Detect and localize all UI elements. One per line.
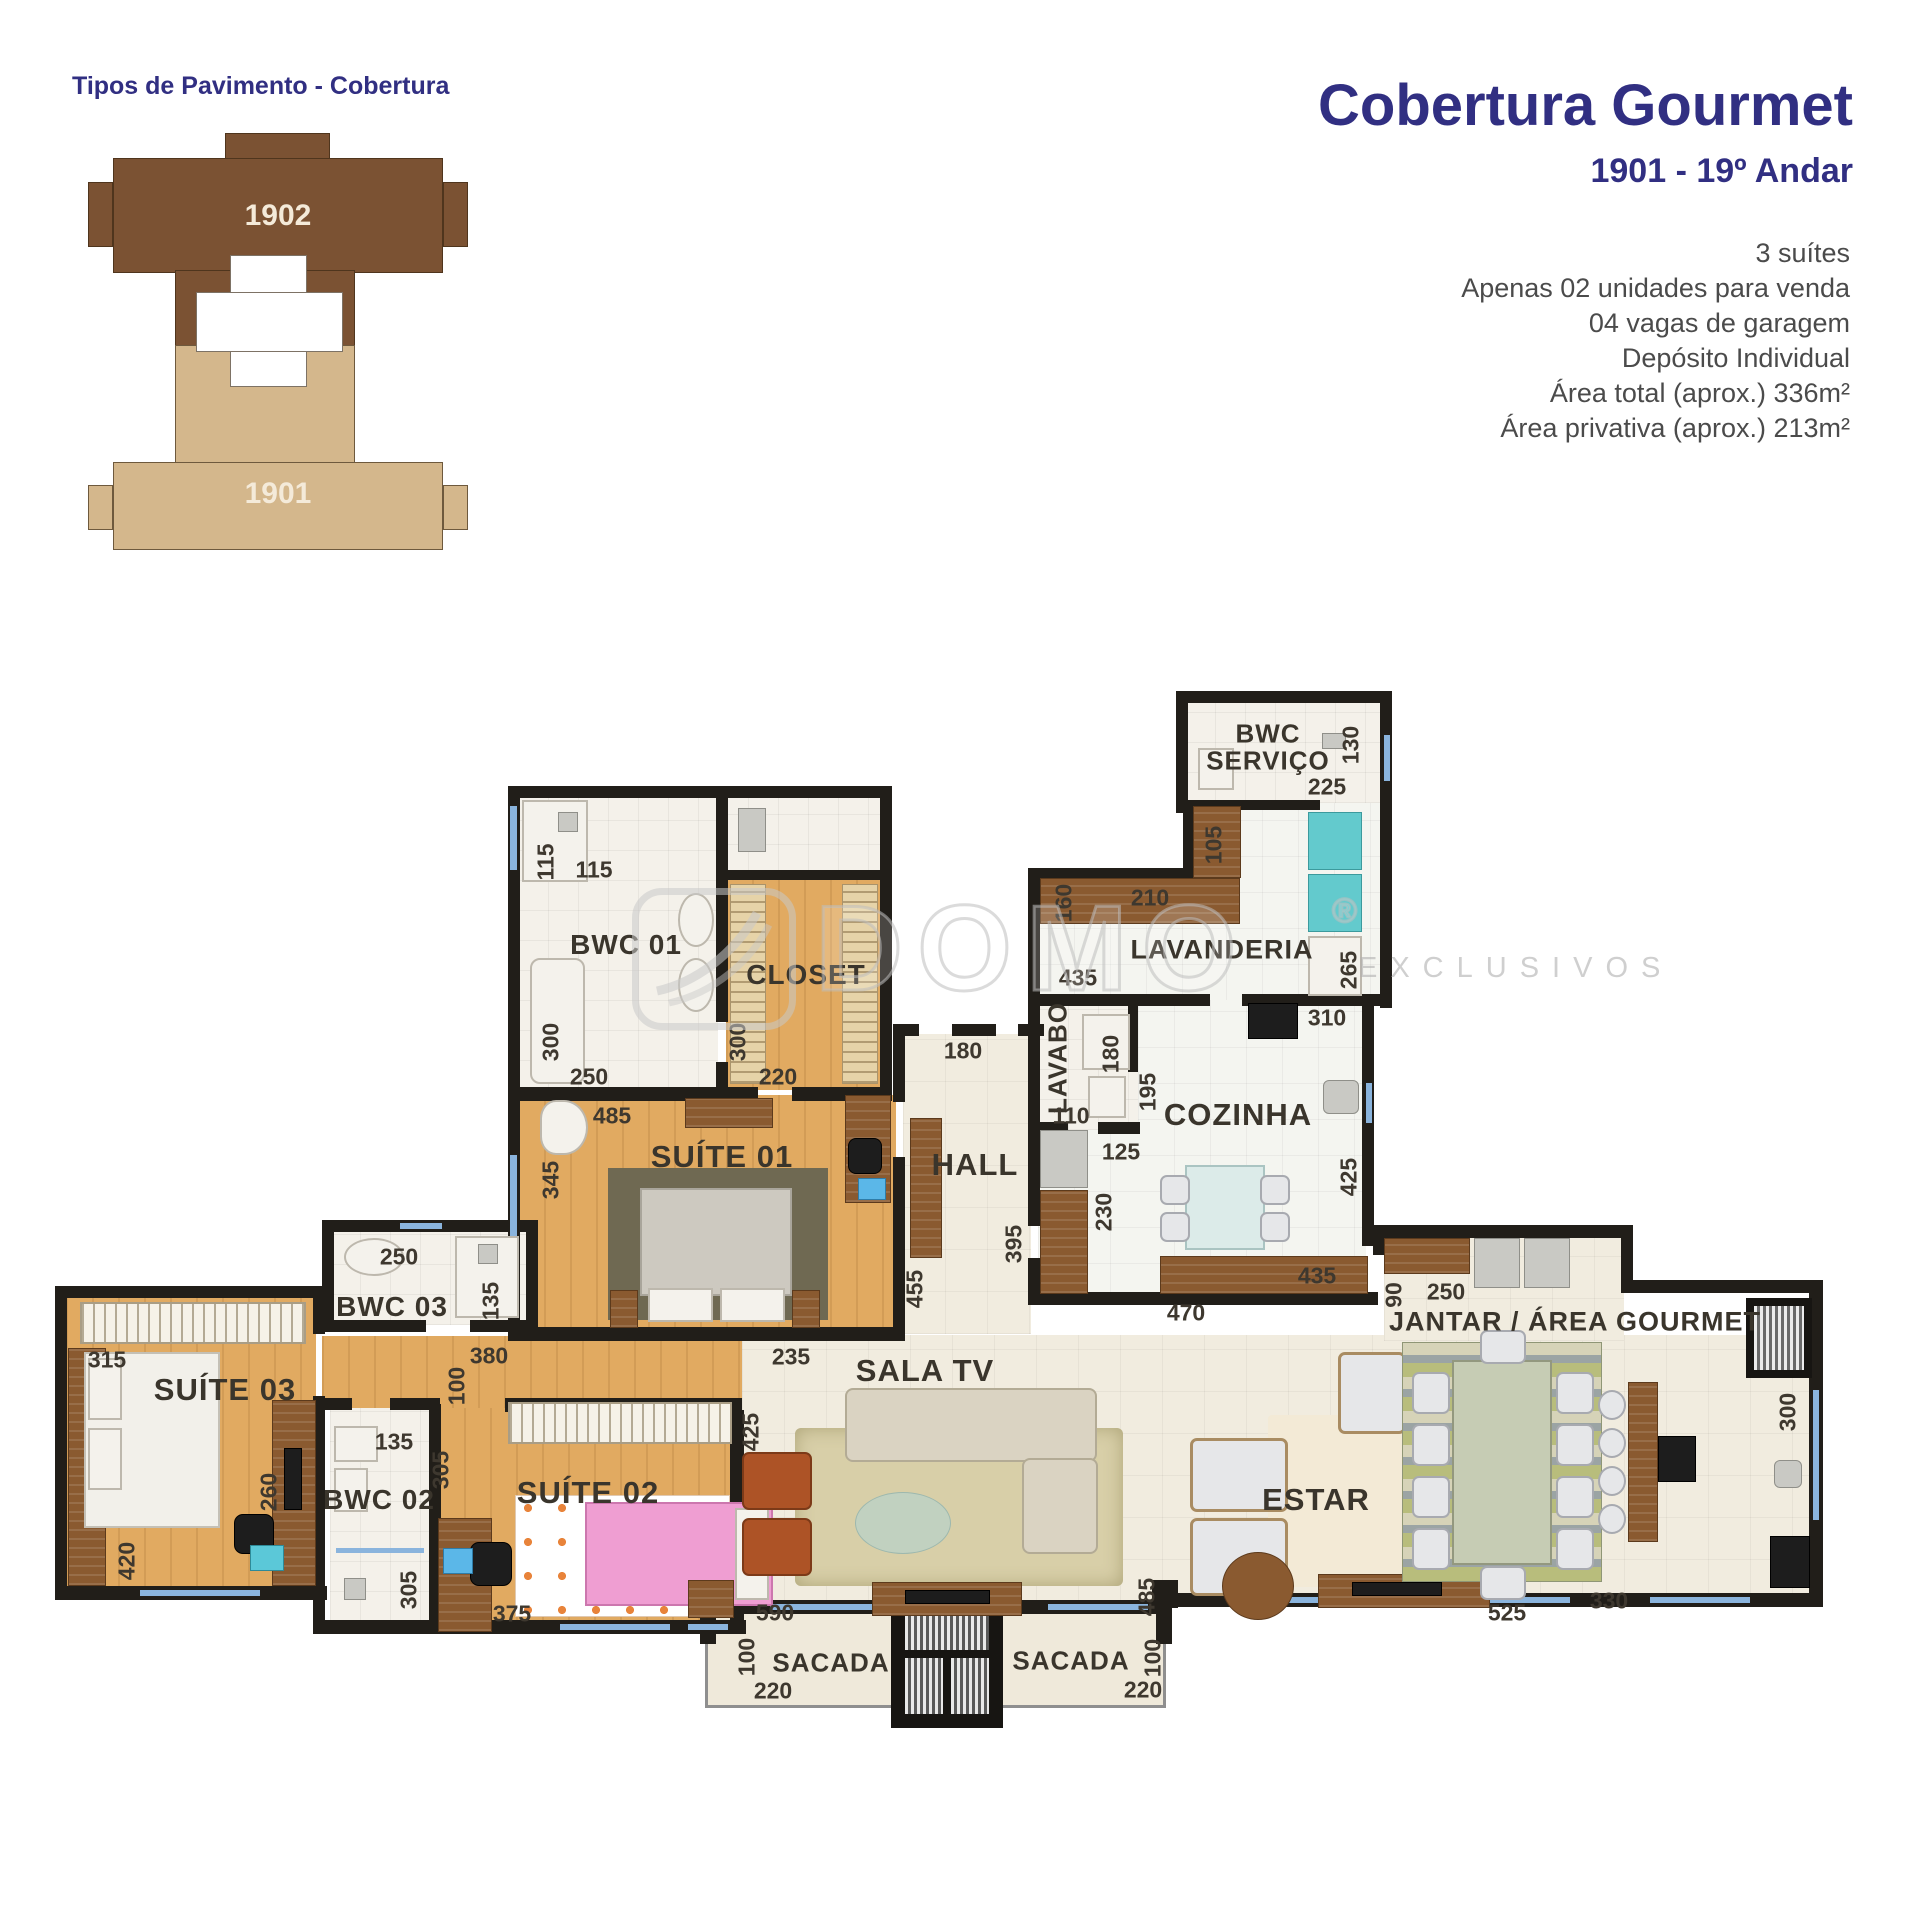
wall bbox=[508, 1327, 905, 1341]
page-subtitle: 1901 - 19º Andar bbox=[1590, 152, 1853, 191]
dim-label: 455 bbox=[902, 1270, 929, 1308]
room-cozinha bbox=[1138, 1000, 1366, 1300]
dining-chair bbox=[1556, 1424, 1594, 1466]
kitchen-cabinet bbox=[1040, 1190, 1088, 1294]
dim-label: 180 bbox=[944, 1038, 982, 1065]
wall bbox=[55, 1286, 67, 1600]
sideboard bbox=[1384, 1238, 1470, 1274]
pillow bbox=[720, 1288, 785, 1322]
gourmet-sink bbox=[1774, 1460, 1802, 1488]
wall bbox=[1098, 1122, 1140, 1134]
wall bbox=[526, 1220, 538, 1330]
dim-label: 305 bbox=[428, 1451, 455, 1489]
watermark-brand: DOMO bbox=[815, 878, 1251, 1018]
kitchen-chair bbox=[1260, 1175, 1290, 1205]
feature-line: Apenas 02 unidades para venda bbox=[1461, 273, 1850, 304]
label-cozinha: COZINHA bbox=[1164, 1097, 1312, 1133]
watermark-tagline: EXCLUSIVOS bbox=[1358, 952, 1673, 985]
computer-monitor bbox=[443, 1548, 473, 1574]
dining-chair bbox=[1412, 1372, 1450, 1414]
bar-stool bbox=[1598, 1428, 1626, 1458]
hall-sideboard bbox=[910, 1118, 942, 1258]
washing-machine bbox=[1308, 812, 1362, 870]
kitchen-chair bbox=[1160, 1212, 1190, 1242]
dim-label: 115 bbox=[533, 843, 560, 880]
dim-label: 590 bbox=[756, 1600, 794, 1627]
nightstand bbox=[610, 1290, 638, 1328]
label-sala-tv: SALA TV bbox=[856, 1353, 994, 1389]
window bbox=[510, 806, 517, 870]
bed-suite01 bbox=[640, 1188, 792, 1296]
round-table bbox=[1222, 1552, 1294, 1620]
label-bwc03: BWC 03 bbox=[336, 1291, 448, 1323]
dim-label: 220 bbox=[759, 1064, 797, 1091]
computer-monitor bbox=[858, 1178, 886, 1200]
page-title: Cobertura Gourmet bbox=[1318, 72, 1853, 139]
shower-glass bbox=[336, 1548, 424, 1553]
dim-label: 225 bbox=[1308, 774, 1346, 801]
dim-label: 115 bbox=[575, 857, 612, 884]
dim-label: 305 bbox=[396, 1571, 423, 1609]
kitchen-chair bbox=[1160, 1175, 1190, 1205]
wall bbox=[1373, 1225, 1633, 1238]
tv-suite03 bbox=[284, 1448, 302, 1510]
wall bbox=[893, 1030, 905, 1102]
wall bbox=[1028, 1134, 1040, 1226]
bathroom-sink bbox=[334, 1426, 378, 1462]
dim-label: 195 bbox=[1135, 1073, 1162, 1111]
legend-title: Tipos de Pavimento - Cobertura bbox=[72, 72, 449, 101]
bar-stool bbox=[1598, 1504, 1626, 1534]
label-suite01: SUÍTE 01 bbox=[651, 1139, 793, 1175]
feature-line: 3 suítes bbox=[1755, 238, 1850, 269]
kitchen-counter bbox=[1160, 1256, 1368, 1294]
dim-label: 310 bbox=[1308, 1005, 1346, 1032]
feature-line: Área privativa (aprox.) 213m² bbox=[1500, 413, 1850, 444]
watermark-registered: ® bbox=[1332, 892, 1357, 931]
wall bbox=[322, 1620, 444, 1634]
shower-head bbox=[478, 1244, 498, 1264]
legend-unit-1901: 1901 bbox=[245, 477, 312, 511]
elevator-shaft bbox=[891, 1598, 1003, 1728]
dim-label: 100 bbox=[734, 1638, 761, 1676]
dining-chair bbox=[1556, 1372, 1594, 1414]
floorplan-page: { "legend": { "title": "Tipos de Pavimen… bbox=[0, 0, 1920, 1920]
shower-head bbox=[344, 1578, 366, 1600]
wardrobe-suite02 bbox=[508, 1402, 732, 1444]
coffee-table bbox=[855, 1492, 951, 1554]
dining-chair bbox=[1556, 1528, 1594, 1570]
shaft-vent bbox=[905, 1612, 989, 1650]
dim-label: 435 bbox=[1298, 1263, 1336, 1290]
sofa bbox=[845, 1388, 1097, 1462]
dining-chair bbox=[1556, 1476, 1594, 1518]
legend-1901-wing bbox=[88, 485, 113, 530]
watermark-logo bbox=[632, 888, 796, 1030]
dim-label: 135 bbox=[478, 1282, 505, 1320]
kitchen-chair bbox=[1260, 1212, 1290, 1242]
watermark-logo-swoosh bbox=[639, 895, 789, 1023]
wall bbox=[1362, 1006, 1374, 1246]
dim-label: 395 bbox=[1001, 1225, 1028, 1263]
shaft-vent bbox=[905, 1658, 943, 1714]
wall bbox=[1176, 691, 1188, 813]
dining-chair bbox=[1412, 1476, 1450, 1518]
dim-label: 470 bbox=[1167, 1300, 1205, 1327]
dim-label: 250 bbox=[380, 1244, 418, 1271]
armchair-rust bbox=[742, 1518, 812, 1576]
dim-label: 345 bbox=[538, 1161, 565, 1199]
dim-label: 250 bbox=[1427, 1279, 1465, 1306]
wall bbox=[322, 1220, 334, 1330]
dim-label: 485 bbox=[1134, 1578, 1161, 1616]
label-hall: HALL bbox=[932, 1147, 1019, 1183]
legend-1902-tab bbox=[225, 133, 330, 161]
dim-label: 230 bbox=[1091, 1193, 1118, 1231]
window bbox=[1384, 735, 1390, 781]
dresser bbox=[685, 1098, 773, 1128]
dim-label: 110 bbox=[1052, 1103, 1089, 1130]
toilet bbox=[738, 808, 766, 852]
label-sacada-right: SACADA bbox=[1012, 1646, 1129, 1677]
dim-label: 485 bbox=[593, 1103, 631, 1130]
dim-label: 100 bbox=[444, 1367, 471, 1405]
armchair-estar bbox=[1338, 1352, 1406, 1434]
window bbox=[1813, 1390, 1819, 1520]
wall bbox=[470, 1320, 538, 1332]
cabinet bbox=[1474, 1238, 1520, 1288]
wall bbox=[55, 1286, 323, 1298]
lavabo-toilet bbox=[1088, 1076, 1126, 1118]
dim-label: 300 bbox=[1775, 1393, 1802, 1431]
bar-stool bbox=[1598, 1390, 1626, 1420]
window bbox=[400, 1223, 442, 1229]
dim-label: 135 bbox=[375, 1429, 413, 1456]
dim-label: 380 bbox=[470, 1343, 508, 1370]
wall bbox=[1621, 1280, 1823, 1293]
armchair-rust bbox=[742, 1452, 812, 1510]
dining-chair bbox=[1412, 1424, 1450, 1466]
pillow bbox=[648, 1288, 713, 1322]
bar-stool bbox=[1598, 1466, 1626, 1496]
bar-counter bbox=[1628, 1382, 1658, 1542]
dim-label: 180 bbox=[1098, 1035, 1125, 1073]
window bbox=[560, 1624, 670, 1630]
kitchen-counter-grey bbox=[1040, 1130, 1088, 1188]
wardrobe-suite03 bbox=[80, 1302, 306, 1344]
dim-label: 90 bbox=[1381, 1282, 1408, 1308]
shaft-vent bbox=[951, 1658, 989, 1714]
feature-line: Depósito Individual bbox=[1622, 343, 1850, 374]
cabinet bbox=[1524, 1238, 1570, 1288]
label-jantar: JANTAR / ÁREA GOURMET bbox=[1389, 1307, 1761, 1338]
dining-chair bbox=[1412, 1528, 1450, 1570]
dim-label: 420 bbox=[114, 1542, 141, 1580]
wall bbox=[1176, 691, 1392, 703]
legend-1901-wing bbox=[443, 485, 468, 530]
television bbox=[1352, 1582, 1442, 1596]
legend-1902-wing bbox=[88, 182, 113, 247]
kitchen-table bbox=[1185, 1165, 1265, 1250]
label-bwc-servico: BWC SERVIÇO bbox=[1193, 721, 1343, 776]
desk-chair bbox=[470, 1542, 512, 1586]
dim-label: 100 bbox=[1140, 1639, 1167, 1677]
fridge bbox=[1323, 1080, 1359, 1114]
dim-label: 330 bbox=[1590, 1588, 1628, 1615]
dining-table bbox=[1452, 1360, 1552, 1565]
wall bbox=[508, 786, 892, 798]
label-suite02: SUÍTE 02 bbox=[517, 1475, 659, 1511]
dim-label: 220 bbox=[754, 1678, 792, 1705]
dim-label: 105 bbox=[1201, 826, 1228, 864]
legend-unit-1902: 1902 bbox=[245, 199, 312, 233]
label-suite03: SUÍTE 03 bbox=[154, 1372, 296, 1408]
dining-chair bbox=[1480, 1566, 1526, 1600]
dim-label: 525 bbox=[1488, 1600, 1526, 1627]
cooktop bbox=[1248, 1003, 1298, 1039]
label-bwc02: BWC 02 bbox=[323, 1484, 435, 1516]
wall bbox=[893, 1024, 919, 1036]
dim-label: 250 bbox=[570, 1064, 608, 1091]
wall bbox=[893, 1157, 905, 1341]
dim-label: 125 bbox=[1102, 1139, 1140, 1166]
television bbox=[905, 1590, 990, 1604]
dim-label: 260 bbox=[256, 1473, 283, 1511]
dim-label: 425 bbox=[1336, 1158, 1363, 1196]
barbecue-grill bbox=[1770, 1536, 1810, 1588]
computer-monitor bbox=[250, 1545, 284, 1571]
wall bbox=[952, 1024, 996, 1036]
sofa-chaise bbox=[1022, 1458, 1098, 1554]
label-estar: ESTAR bbox=[1262, 1482, 1370, 1518]
nightstand bbox=[688, 1580, 734, 1618]
lounge-chair bbox=[540, 1100, 588, 1155]
dim-label: 220 bbox=[1124, 1677, 1162, 1704]
legend-1902-wing bbox=[443, 182, 468, 247]
dim-label: 375 bbox=[493, 1601, 531, 1628]
nightstand bbox=[792, 1290, 820, 1328]
island-cooktop bbox=[1658, 1436, 1696, 1482]
legend-stairwell bbox=[196, 292, 343, 352]
dim-label: 235 bbox=[772, 1344, 810, 1371]
window bbox=[688, 1624, 728, 1630]
label-sacada-left: SACADA bbox=[772, 1648, 889, 1679]
wall bbox=[1028, 1006, 1040, 1134]
desk-chair bbox=[848, 1138, 882, 1174]
dim-label: 300 bbox=[538, 1023, 565, 1061]
dim-label: 425 bbox=[738, 1413, 765, 1451]
label-lavabo: LAVABO bbox=[1043, 1002, 1074, 1114]
wall bbox=[322, 1398, 352, 1410]
dim-label: 130 bbox=[1338, 726, 1365, 764]
shower-head bbox=[558, 812, 578, 832]
dim-label: 315 bbox=[88, 1347, 126, 1374]
feature-line: 04 vagas de garagem bbox=[1589, 308, 1850, 339]
feature-line: Área total (aprox.) 336m² bbox=[1550, 378, 1850, 409]
pillow bbox=[88, 1428, 122, 1490]
window bbox=[1650, 1597, 1750, 1603]
window bbox=[1366, 1083, 1372, 1123]
window bbox=[140, 1590, 260, 1596]
